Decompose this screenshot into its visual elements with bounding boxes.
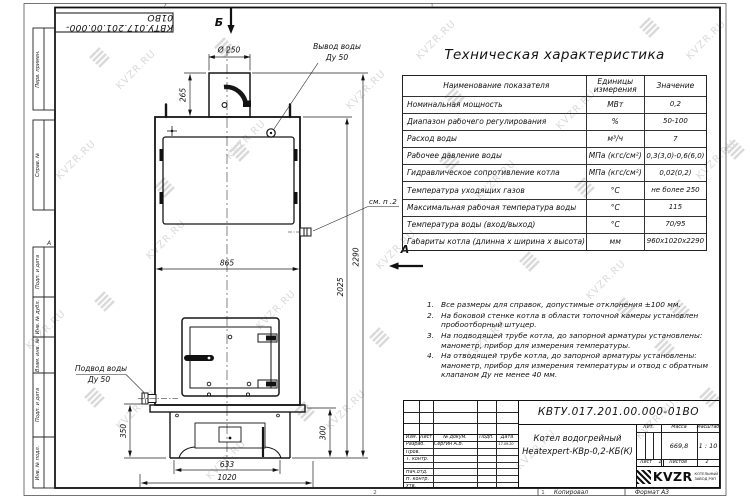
dim-1020: 1020 [217, 473, 236, 482]
watermark-text: KVZR.RU [584, 258, 628, 302]
spec-table: Наименование показателя Единицы измерени… [402, 75, 707, 251]
watermark-logo-icon [520, 252, 539, 271]
watermark-text: KVZR.RU [224, 118, 268, 162]
dim-2025: 2025 [336, 277, 345, 296]
sampling-fitting [288, 228, 311, 236]
scale-label: Масштаб [697, 424, 719, 432]
format-label: Формат А3 [635, 489, 669, 496]
table-row: Гидравлическое сопротивление котлаМПа (к… [403, 164, 706, 181]
frame-label-sprav-no: Справ. № [35, 135, 41, 195]
watermark-logo-icon [85, 388, 104, 407]
datum-cross [167, 126, 177, 136]
door-hinges [258, 334, 277, 388]
leg-cutout [179, 447, 195, 458]
base-plate [150, 405, 305, 412]
dim-633: 633 [220, 460, 235, 469]
table-row: Температура уходящих газов°Сне более 250 [403, 181, 706, 198]
notes-list: 1.Все размеры для справок, допустимые от… [427, 300, 717, 381]
outlet-label-line2: Ду 50 [325, 53, 348, 62]
table-row: Габариты котла (длинна х ширина х высота… [403, 233, 706, 250]
sheets-value: 2 [702, 459, 712, 466]
mass-value: 669,8 [661, 432, 697, 459]
inlet-label-line1: Подвод воды [75, 364, 127, 373]
product-name-line1: Котел водогрейный [534, 432, 622, 445]
sheet-value: 1 [656, 459, 664, 466]
title-block: Изм. Лист № докум. Подп. Дата Разраб.Сер… [403, 400, 720, 488]
view-b-label: Б [215, 16, 223, 29]
note-item: 3.На подводящей трубе котла, до запорной… [427, 331, 717, 350]
kvzr-logo-subtext: КОТЕЛЬНЫЙ ЗАВОД РЭП [695, 472, 719, 481]
product-name-line2: Heatexpert-КВр-0,2-КБ(К) [522, 445, 633, 458]
scale-value: 1 : 10 [697, 432, 719, 459]
col-dokum: № докум. [433, 434, 477, 441]
note-item: 2.На боковой стенке котла в области топо… [427, 311, 717, 330]
watermark-logo-icon [90, 48, 109, 67]
dim-2290: 2290 [352, 247, 361, 266]
dim-865: 865 [220, 259, 235, 268]
drawing-sheet: KVZR.RUKVZR.RUKVZR.RUKVZR.RUKVZR.RUKVZR.… [0, 0, 750, 500]
col-header-value: Значение [644, 76, 706, 96]
watermark-text: KVZR.RU [114, 48, 158, 92]
mass-label: Масса [661, 424, 697, 432]
spec-table-title: Техническая характеристика [402, 47, 707, 63]
table-row: Рабочее давление водыМПа (кгс/см²)0,3(3,… [403, 147, 706, 164]
sign-row: Разраб.Сергин А.В.17.09.20 [404, 441, 518, 448]
sheet-label: Лист [638, 459, 654, 466]
watermark-text: KVZR.RU [324, 388, 368, 432]
watermark-logo-icon [95, 292, 114, 311]
frame-label-perv-primen: Перв. примен. [35, 39, 41, 99]
copied-label: Копировал [554, 489, 588, 496]
dim-300: 300 [319, 426, 328, 441]
note-item: 4.На отводящей трубе котла, до запорной … [427, 351, 717, 380]
col-header-units: Единицы измерения [586, 76, 644, 96]
kvzr-logo-text: KVZR [653, 469, 693, 484]
frame-label-inv-podl: Инв. № подл. [35, 433, 41, 493]
doc-number-rotated: КВТУ.017.201.00.000-01ВО [55, 13, 173, 32]
see-note-label: см. п .2 [369, 197, 397, 206]
table-row: Максимальная рабочая температура воды°С1… [403, 199, 706, 216]
watermark-text: KVZR.RU [54, 138, 98, 182]
dim-265: 265 [179, 88, 188, 103]
leg-cutout [265, 447, 281, 458]
zone-digit: 2 [163, 3, 167, 9]
frame-label-podp-data-2: Подп. и дата [35, 375, 41, 435]
note-item: 1.Все размеры для справок, допустимые от… [427, 300, 717, 310]
water-inlet-fitting [138, 393, 178, 404]
spec-table-rows: Номинальная мощностьМВт0,2Диапазон рабоч… [403, 96, 706, 250]
zone-digit: 1 [430, 3, 434, 9]
watermark-text: KVZR.RU [24, 308, 68, 352]
watermark-logo-icon [155, 178, 174, 197]
inlet-label-line2: Ду 50 [87, 375, 110, 384]
zone-a-marker: А [46, 240, 51, 247]
table-row: Температура воды (вход/выход)°С70/95 [403, 216, 706, 233]
dim-dia250: Ø 250 [217, 46, 241, 55]
company-logo: KVZR КОТЕЛЬНЫЙ ЗАВОД РЭП [636, 466, 719, 487]
view-b-arrow [227, 25, 234, 34]
zone-digit: 2 [373, 490, 377, 496]
spec-table-header: Наименование показателя Единицы измерени… [403, 76, 706, 96]
title-block-doc-number: КВТУ.017.201.00.000-01ВО [518, 401, 719, 423]
product-name: Котел водогрейный Heatexpert-КВр-0,2-КБ(… [518, 424, 637, 466]
table-row: Расход водым³/ч7 [403, 130, 706, 147]
watermark-text: KVZR.RU [144, 218, 188, 262]
col-podp: Подп. [477, 434, 496, 441]
sheets-label: Листов [666, 459, 690, 466]
sign-row: Утв. [404, 482, 518, 490]
col-list: Лист [419, 434, 433, 441]
lit-label: Лит. [636, 424, 661, 432]
table-row: Диапазон рабочего регулирования%50-100 [403, 113, 706, 130]
col-data: Дата [496, 434, 518, 441]
watermark-logo-icon [370, 328, 389, 347]
dim-350: 350 [119, 424, 128, 439]
table-row: Номинальная мощностьМВт0,2 [403, 96, 706, 113]
watermark-text: KVZR.RU [344, 68, 388, 112]
door-bolts [207, 335, 251, 396]
strip-sheet-number: 1 [541, 490, 545, 496]
outlet-label-line1: Вывод воды [313, 42, 361, 51]
watermark-text: KVZR.RU [254, 288, 298, 332]
col-header-name: Наименование показателя [403, 82, 586, 90]
col-izm: Изм. [404, 434, 419, 441]
kvzr-logo-icon [637, 470, 651, 484]
watermark-logo-icon [640, 18, 659, 37]
